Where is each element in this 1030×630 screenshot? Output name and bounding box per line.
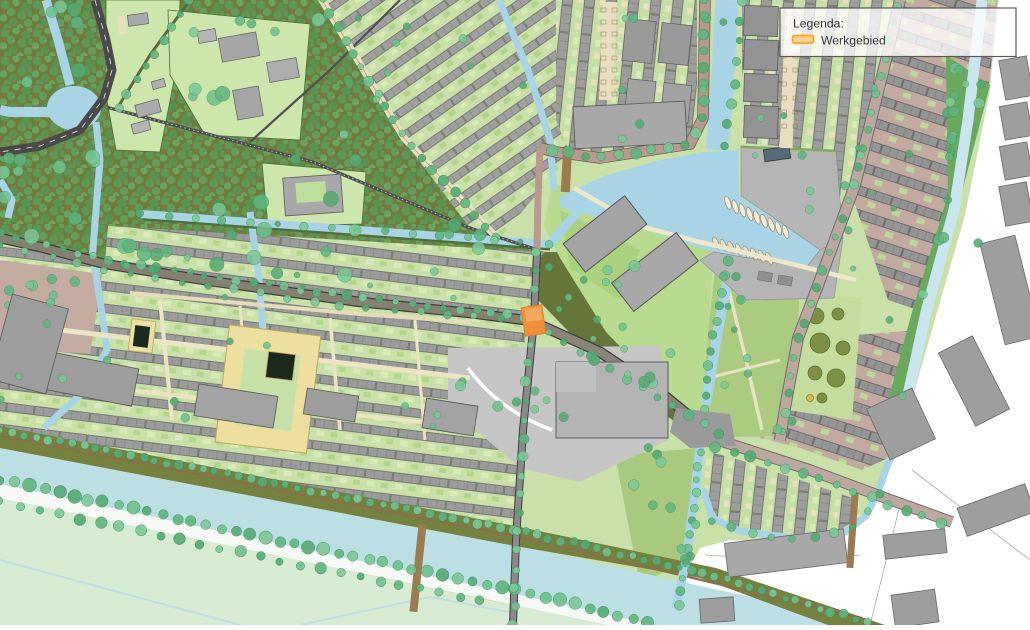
svg-text:Werkgebied: Werkgebied	[821, 34, 886, 48]
svg-text:Legenda:: Legenda:	[793, 17, 844, 31]
